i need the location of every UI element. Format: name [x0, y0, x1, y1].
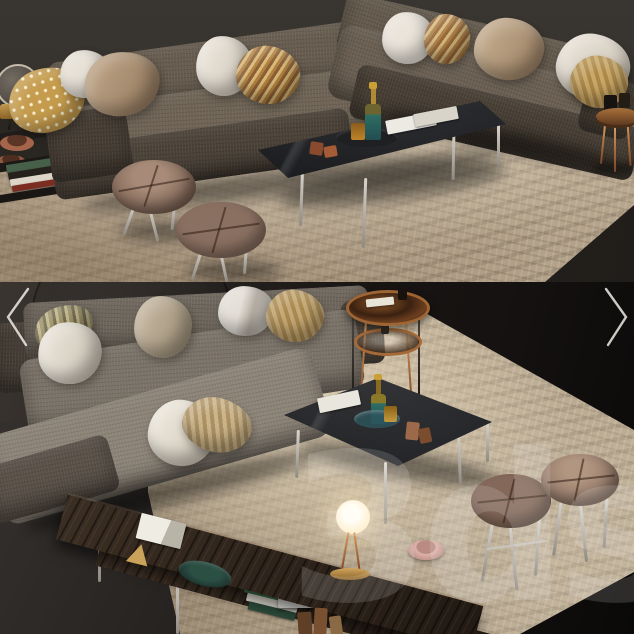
amber-cup [351, 123, 365, 140]
terracotta-bowl [0, 135, 34, 151]
wood-block [323, 145, 338, 158]
wine-bottle-cap [374, 374, 382, 380]
wooden-side-table [596, 108, 634, 125]
wine-bottle-cap [369, 82, 377, 89]
next-arrow-icon[interactable] [598, 286, 632, 348]
table-leg [497, 124, 500, 166]
model-preview-carousel: 3dsky [0, 0, 634, 634]
bar-cart-top [346, 290, 430, 326]
side-table-leg [614, 126, 616, 172]
previous-arrow-icon[interactable] [2, 286, 36, 348]
watermark: 3dsky [288, 428, 634, 633]
wood-block [309, 141, 324, 156]
slide-1-living-room-render [0, 0, 634, 282]
wine-bottle [365, 104, 381, 140]
dark-bottle [398, 286, 407, 300]
pouf-shadow [186, 262, 282, 280]
leather-pouf [112, 160, 196, 214]
black-jar [619, 93, 630, 108]
